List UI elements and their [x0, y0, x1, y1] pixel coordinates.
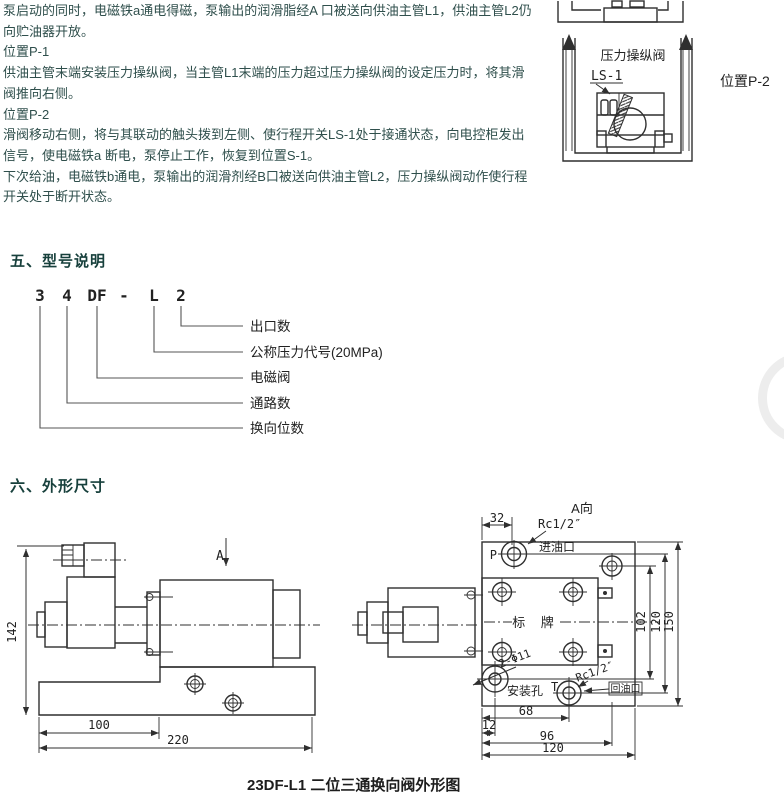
- dim-142: 142: [5, 621, 19, 643]
- dim-68: 68: [519, 704, 533, 718]
- intro-line: 泵启动的同时，电磁铁a通电得磁，泵输出的润滑脂经A 口被送向供油主管L1，供油主…: [3, 1, 532, 22]
- code-label: 电磁阀: [250, 370, 291, 385]
- intro-line: 开关处于断开状态。: [3, 187, 532, 208]
- position-p2-label: 位置P-2: [720, 73, 770, 89]
- model-section-heading: 五、型号说明: [10, 250, 106, 271]
- mount-hole-label: 安装孔: [507, 683, 543, 698]
- thread-label-t: Rc1/2″: [574, 659, 616, 685]
- intro-line: 位置P-2: [3, 105, 532, 126]
- dim-150: 150: [662, 611, 676, 633]
- dim-32: 32: [490, 511, 504, 525]
- intro-text: 泵启动的同时，电磁铁a通电得磁，泵输出的润滑脂经A 口被送向供油主管L1，供油主…: [3, 1, 532, 208]
- code-label: 公称压力代号(20MPa): [250, 345, 383, 360]
- figure-caption: 23DF-L1 二位三通换向阀外形图: [247, 774, 460, 795]
- leader-lines: [40, 306, 243, 428]
- intro-line: 位置P-1: [3, 42, 532, 63]
- cutoff-top-diagram: [558, 1, 683, 22]
- base-bolts: [184, 673, 244, 714]
- p2-diagram-labels: 压力操纵阀 LS-1 位置P-2: [590, 48, 770, 94]
- code-char: 2: [176, 286, 186, 305]
- a-view-silhouette: [352, 588, 483, 657]
- valve-title-label: 压力操纵阀: [600, 48, 665, 63]
- code-label: 出口数: [250, 319, 291, 334]
- dim-12: 12: [482, 718, 496, 732]
- a-view-title: A向: [571, 501, 593, 516]
- nameplate-label: 标 牌: [512, 615, 560, 630]
- document-page: 泵启动的同时，电磁铁a通电得磁，泵输出的润滑脂经A 口被送向供油主管L1，供油主…: [0, 0, 784, 809]
- code-label: 换向位数: [250, 421, 304, 436]
- dim-120-right: 120: [649, 611, 663, 633]
- intro-line: 向贮油器开放。: [3, 22, 532, 43]
- port-p-label: P: [490, 548, 497, 562]
- model-code-labels: 出口数 公称压力代号(20MPa) 电磁阀 通路数 换向位数: [250, 319, 383, 436]
- dim-220: 220: [167, 733, 189, 747]
- dim-120-bottom: 120: [542, 741, 564, 755]
- side-view: A 142: [5, 538, 320, 753]
- valve-mechanism: [597, 93, 672, 153]
- inlet-label: 进油口: [539, 540, 575, 554]
- dim-100: 100: [88, 718, 110, 732]
- thread-label-p: Rc1/2″: [538, 517, 581, 531]
- dim-102: 102: [634, 611, 648, 633]
- pressure-valve-p2-diagram: 压力操纵阀 LS-1 位置P-2: [550, 0, 784, 175]
- code-char: 3: [35, 286, 45, 305]
- view-arrow-label: A: [216, 549, 224, 564]
- code-char: L: [149, 286, 159, 305]
- intro-line: 信号，使电磁铁a 断电，泵停止工作，恢复到位置S-1。: [3, 146, 532, 167]
- limit-switch-label: LS-1: [591, 69, 622, 84]
- model-code-diagram: 3 4 DF - L 2 出口数 公称压力代号(20MPa) 电磁阀 通路数 换…: [25, 278, 455, 443]
- watermark-arc: [758, 352, 784, 444]
- model-code-text: 3 4 DF - L 2: [35, 286, 186, 305]
- intro-line: 供油主管末端安装压力操纵阀，当主管L1末端的压力超过压力操纵阀的设定压力时，将其…: [3, 63, 532, 84]
- code-label: 通路数: [250, 396, 291, 411]
- intro-line: 下次给油，电磁铁b通电，泵输出的润滑剂经B口被送向供油主管L2，压力操纵阀动作使…: [3, 167, 532, 188]
- a-view-plate: A向 32 Rc1/2″ P 进油口: [473, 501, 683, 760]
- outline-section-heading: 六、外形尺寸: [10, 475, 106, 496]
- intro-line: 阀推向右侧。: [3, 84, 532, 105]
- code-char: DF: [87, 286, 106, 305]
- code-char: -: [119, 286, 129, 305]
- code-char: 4: [62, 286, 72, 305]
- outline-dimension-drawing: A 142: [0, 495, 784, 785]
- intro-line: 滑阀移动右侧，将与其联动的触头拨到左侧、使行程开关LS-1处于接通状态，向电控柜…: [3, 125, 532, 146]
